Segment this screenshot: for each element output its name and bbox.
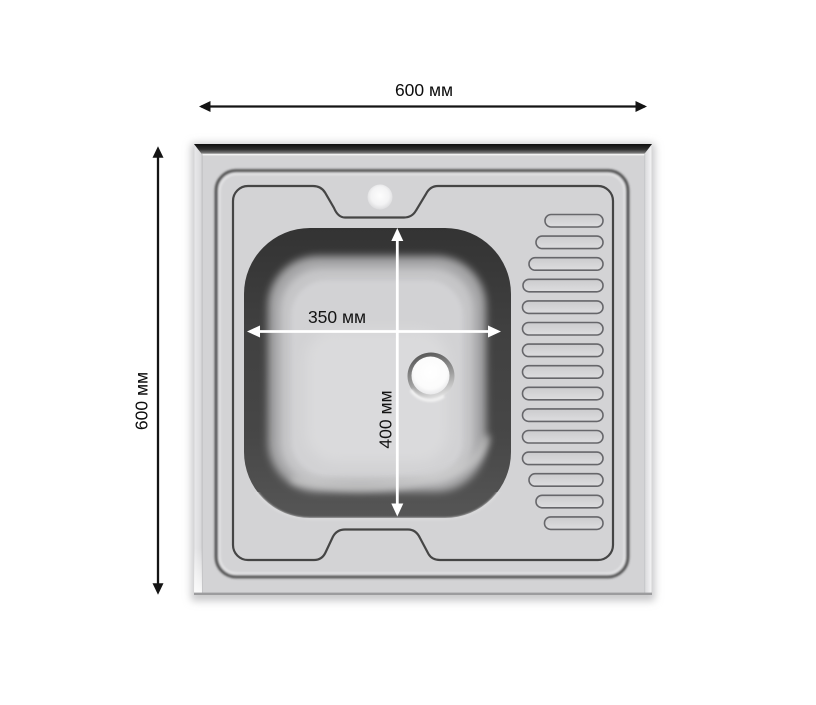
svg-text:400 мм: 400 мм bbox=[376, 390, 396, 448]
svg-text:350 мм: 350 мм bbox=[308, 307, 366, 327]
svg-text:600 мм: 600 мм bbox=[132, 372, 152, 430]
svg-text:600 мм: 600 мм bbox=[395, 80, 453, 100]
